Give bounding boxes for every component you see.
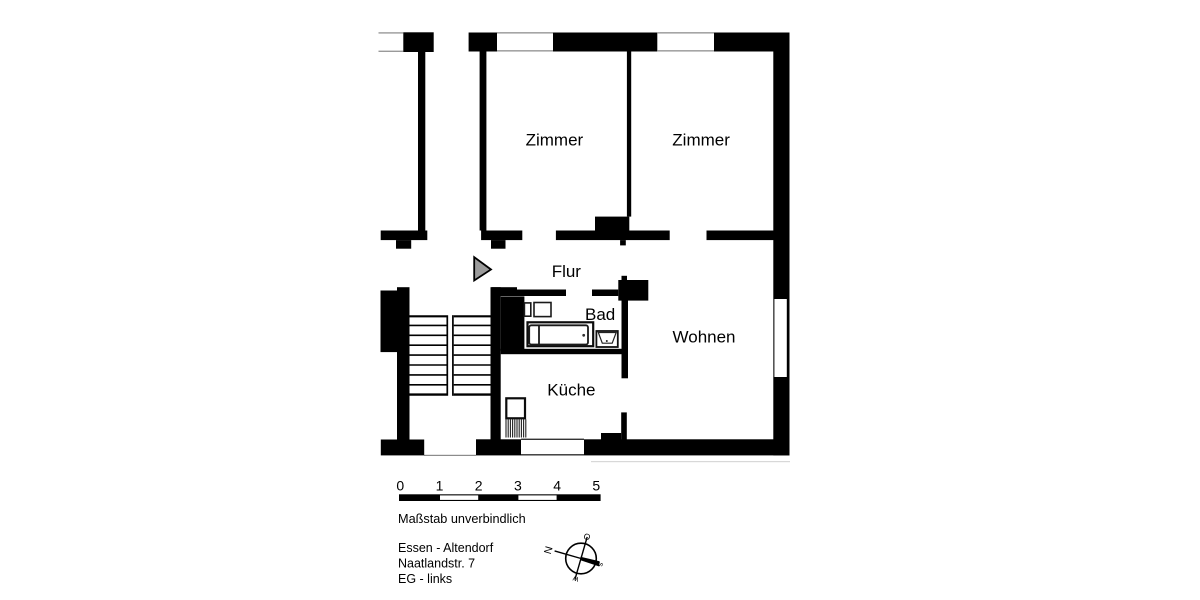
svg-text:Wohnen: Wohnen xyxy=(673,328,736,347)
svg-text:5: 5 xyxy=(592,478,600,494)
svg-text:4: 4 xyxy=(553,478,561,494)
svg-text:2: 2 xyxy=(475,478,483,494)
svg-text:Bad: Bad xyxy=(585,305,615,324)
svg-text:Zimmer: Zimmer xyxy=(672,131,730,150)
svg-text:1: 1 xyxy=(436,478,444,494)
svg-text:Maßstab unverbindlich: Maßstab unverbindlich xyxy=(398,512,526,526)
svg-text:EG - links: EG - links xyxy=(398,572,452,586)
svg-text:0: 0 xyxy=(396,478,404,494)
svg-text:3: 3 xyxy=(514,478,522,494)
svg-text:Küche: Küche xyxy=(547,381,595,400)
svg-text:Zimmer: Zimmer xyxy=(526,131,584,150)
svg-text:Naatlandstr. 7: Naatlandstr. 7 xyxy=(398,557,475,571)
svg-text:Flur: Flur xyxy=(552,262,582,281)
svg-text:Essen - Altendorf: Essen - Altendorf xyxy=(398,541,494,555)
